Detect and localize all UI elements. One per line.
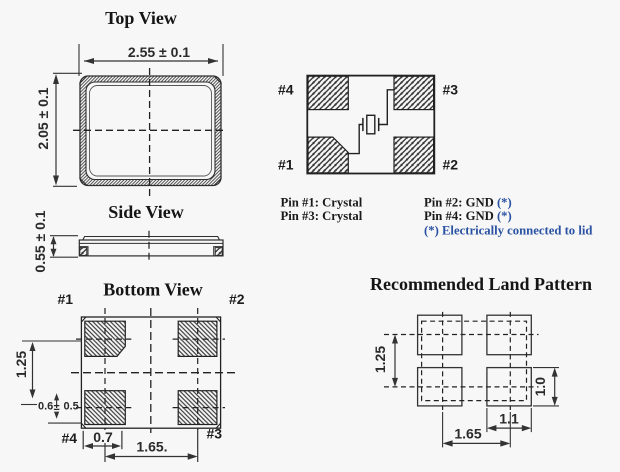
svg-text:1.1: 1.1 — [499, 411, 519, 427]
svg-text:Side View: Side View — [108, 202, 184, 222]
svg-text:2.05 ± 0.1: 2.05 ± 0.1 — [35, 87, 51, 149]
svg-text:1.0: 1.0 — [532, 377, 548, 397]
svg-text:#2: #2 — [443, 157, 459, 173]
svg-text:#1: #1 — [58, 291, 74, 307]
svg-text:0.7: 0.7 — [93, 429, 113, 445]
svg-text:#1: #1 — [278, 157, 294, 173]
svg-text:±: ± — [54, 401, 60, 413]
svg-text:0.5: 0.5 — [64, 401, 79, 413]
svg-text:Pin #1: Crystal: Pin #1: Crystal — [281, 196, 363, 210]
svg-text:Pin #4: GND (*): Pin #4: GND (*) — [424, 209, 512, 223]
svg-text:1.65.: 1.65. — [136, 439, 167, 455]
svg-text:#3: #3 — [443, 82, 459, 98]
svg-text:Top View: Top View — [105, 8, 177, 28]
svg-text:1.25: 1.25 — [372, 346, 388, 373]
svg-text:#4: #4 — [62, 430, 78, 446]
svg-text:1.25: 1.25 — [13, 351, 29, 378]
svg-text:Bottom View: Bottom View — [103, 280, 202, 300]
svg-text:#4: #4 — [278, 82, 294, 98]
svg-text:0.6: 0.6 — [38, 401, 53, 413]
svg-text:(*) Electrically connected to: (*) Electrically connected to lid — [424, 224, 592, 238]
svg-text:0.55 ± 0.1: 0.55 ± 0.1 — [32, 210, 48, 272]
svg-text:#2: #2 — [229, 291, 245, 307]
svg-text:Recommended Land Pattern: Recommended Land Pattern — [370, 274, 592, 294]
svg-text:1.65: 1.65 — [454, 426, 481, 442]
svg-text:Pin #3: Crystal: Pin #3: Crystal — [281, 209, 363, 223]
svg-text:Pin #2: GND (*): Pin #2: GND (*) — [424, 196, 512, 210]
svg-text:2.55 ± 0.1: 2.55 ± 0.1 — [128, 44, 190, 60]
